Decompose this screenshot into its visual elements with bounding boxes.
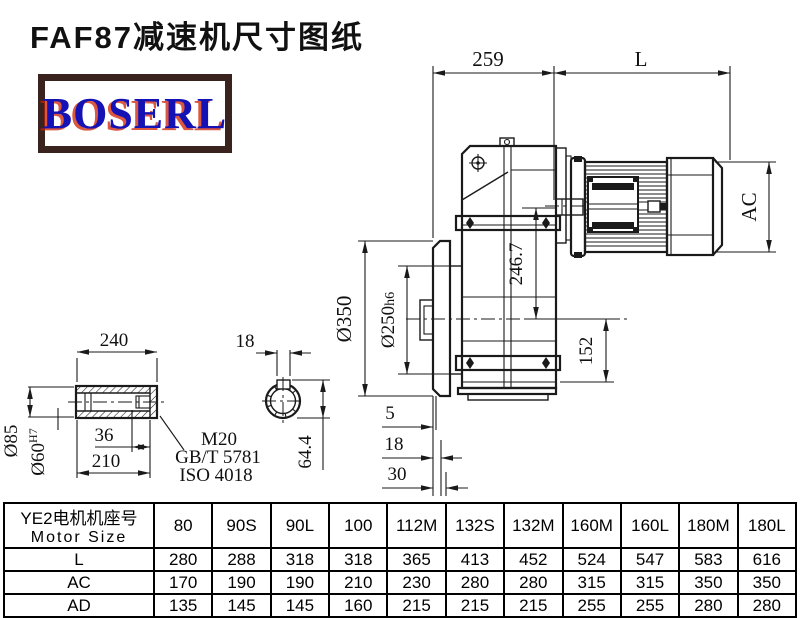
- motor: [556, 148, 722, 258]
- shaft-detail: 240 Ø85 Ø60H7 36 210 M20 GB/T 5781 ISO 4…: [1, 330, 261, 486]
- col-header: 80: [154, 503, 212, 548]
- fan-cowl: [667, 158, 713, 255]
- table-cell: 315: [621, 571, 679, 594]
- table-cell: 280: [504, 571, 562, 594]
- table-cell: 365: [387, 548, 445, 571]
- dim-30: 30: [388, 464, 407, 485]
- dim-shaft-od: Ø85: [1, 425, 22, 458]
- dim-259: 259: [472, 47, 504, 71]
- col-header: 100: [329, 503, 387, 548]
- col-header: 160M: [563, 503, 621, 548]
- table-cell: 318: [271, 548, 329, 571]
- dim-spigot: Ø250h6: [378, 292, 399, 348]
- col-header: 160L: [621, 503, 679, 548]
- col-header: 180L: [738, 503, 796, 548]
- table-cell: 190: [212, 571, 270, 594]
- dim-flange-od: Ø350: [332, 296, 356, 343]
- table-cell: 452: [504, 548, 562, 571]
- col-header: 90S: [212, 503, 270, 548]
- dim-36: 36: [95, 425, 114, 446]
- dim-5: 5: [385, 403, 395, 424]
- motor-size-header: YE2电机机座号 Motor Size: [4, 503, 154, 548]
- table-cell: 583: [679, 548, 737, 571]
- table-cell: 280: [446, 571, 504, 594]
- table-cell: 547: [621, 548, 679, 571]
- table-cell: 288: [212, 548, 270, 571]
- col-header: 180M: [679, 503, 737, 548]
- table-cell: 350: [738, 571, 796, 594]
- dim-bore: Ø60H7: [26, 428, 49, 475]
- motor-size-header-cn: YE2电机机座号: [5, 504, 153, 529]
- table-row: L 280 288 318 318 365 413 452 524 547 58…: [4, 548, 796, 571]
- dim-group-top: 259 L: [433, 47, 730, 238]
- table-cell: 318: [329, 548, 387, 571]
- dim-240: 240: [100, 330, 129, 351]
- col-header: 132M: [504, 503, 562, 548]
- table-cell: 230: [387, 571, 445, 594]
- label-standard-iso: ISO 4018: [179, 465, 252, 486]
- col-header: 112M: [387, 503, 445, 548]
- dim-key-height: 64.4: [295, 435, 316, 469]
- dim-L: L: [635, 47, 648, 71]
- col-header: 132S: [446, 503, 504, 548]
- col-header: 90L: [271, 503, 329, 548]
- motor-size-table: YE2电机机座号 Motor Size 80 90S 90L 100 112M …: [3, 502, 797, 618]
- table-cell: 350: [679, 571, 737, 594]
- table-cell: 413: [446, 548, 504, 571]
- row-label: L: [4, 548, 154, 571]
- table-cell: 315: [563, 571, 621, 594]
- dim-246-7: 246.7: [506, 243, 527, 286]
- table-cell: 210: [329, 571, 387, 594]
- dim-AC: AC: [737, 192, 761, 221]
- motor-size-header-en: Motor Size: [5, 529, 153, 547]
- dim-152: 152: [576, 337, 597, 366]
- dim-key-width: 18: [236, 331, 255, 352]
- table-cell: 280: [154, 548, 212, 571]
- dim-group-front: AC 246.7 152 Ø350 Ø250h6 5 18 30: [332, 162, 776, 496]
- table-cell: 524: [563, 548, 621, 571]
- table-row: AC 170 190 190 210 230 280 280 315 315 3…: [4, 571, 796, 594]
- dim-210: 210: [92, 451, 121, 472]
- dim-18-offset: 18: [385, 434, 404, 455]
- table-cell: 616: [738, 548, 796, 571]
- table-cell: 190: [271, 571, 329, 594]
- row-label: AC: [4, 571, 154, 594]
- table-cell: 170: [154, 571, 212, 594]
